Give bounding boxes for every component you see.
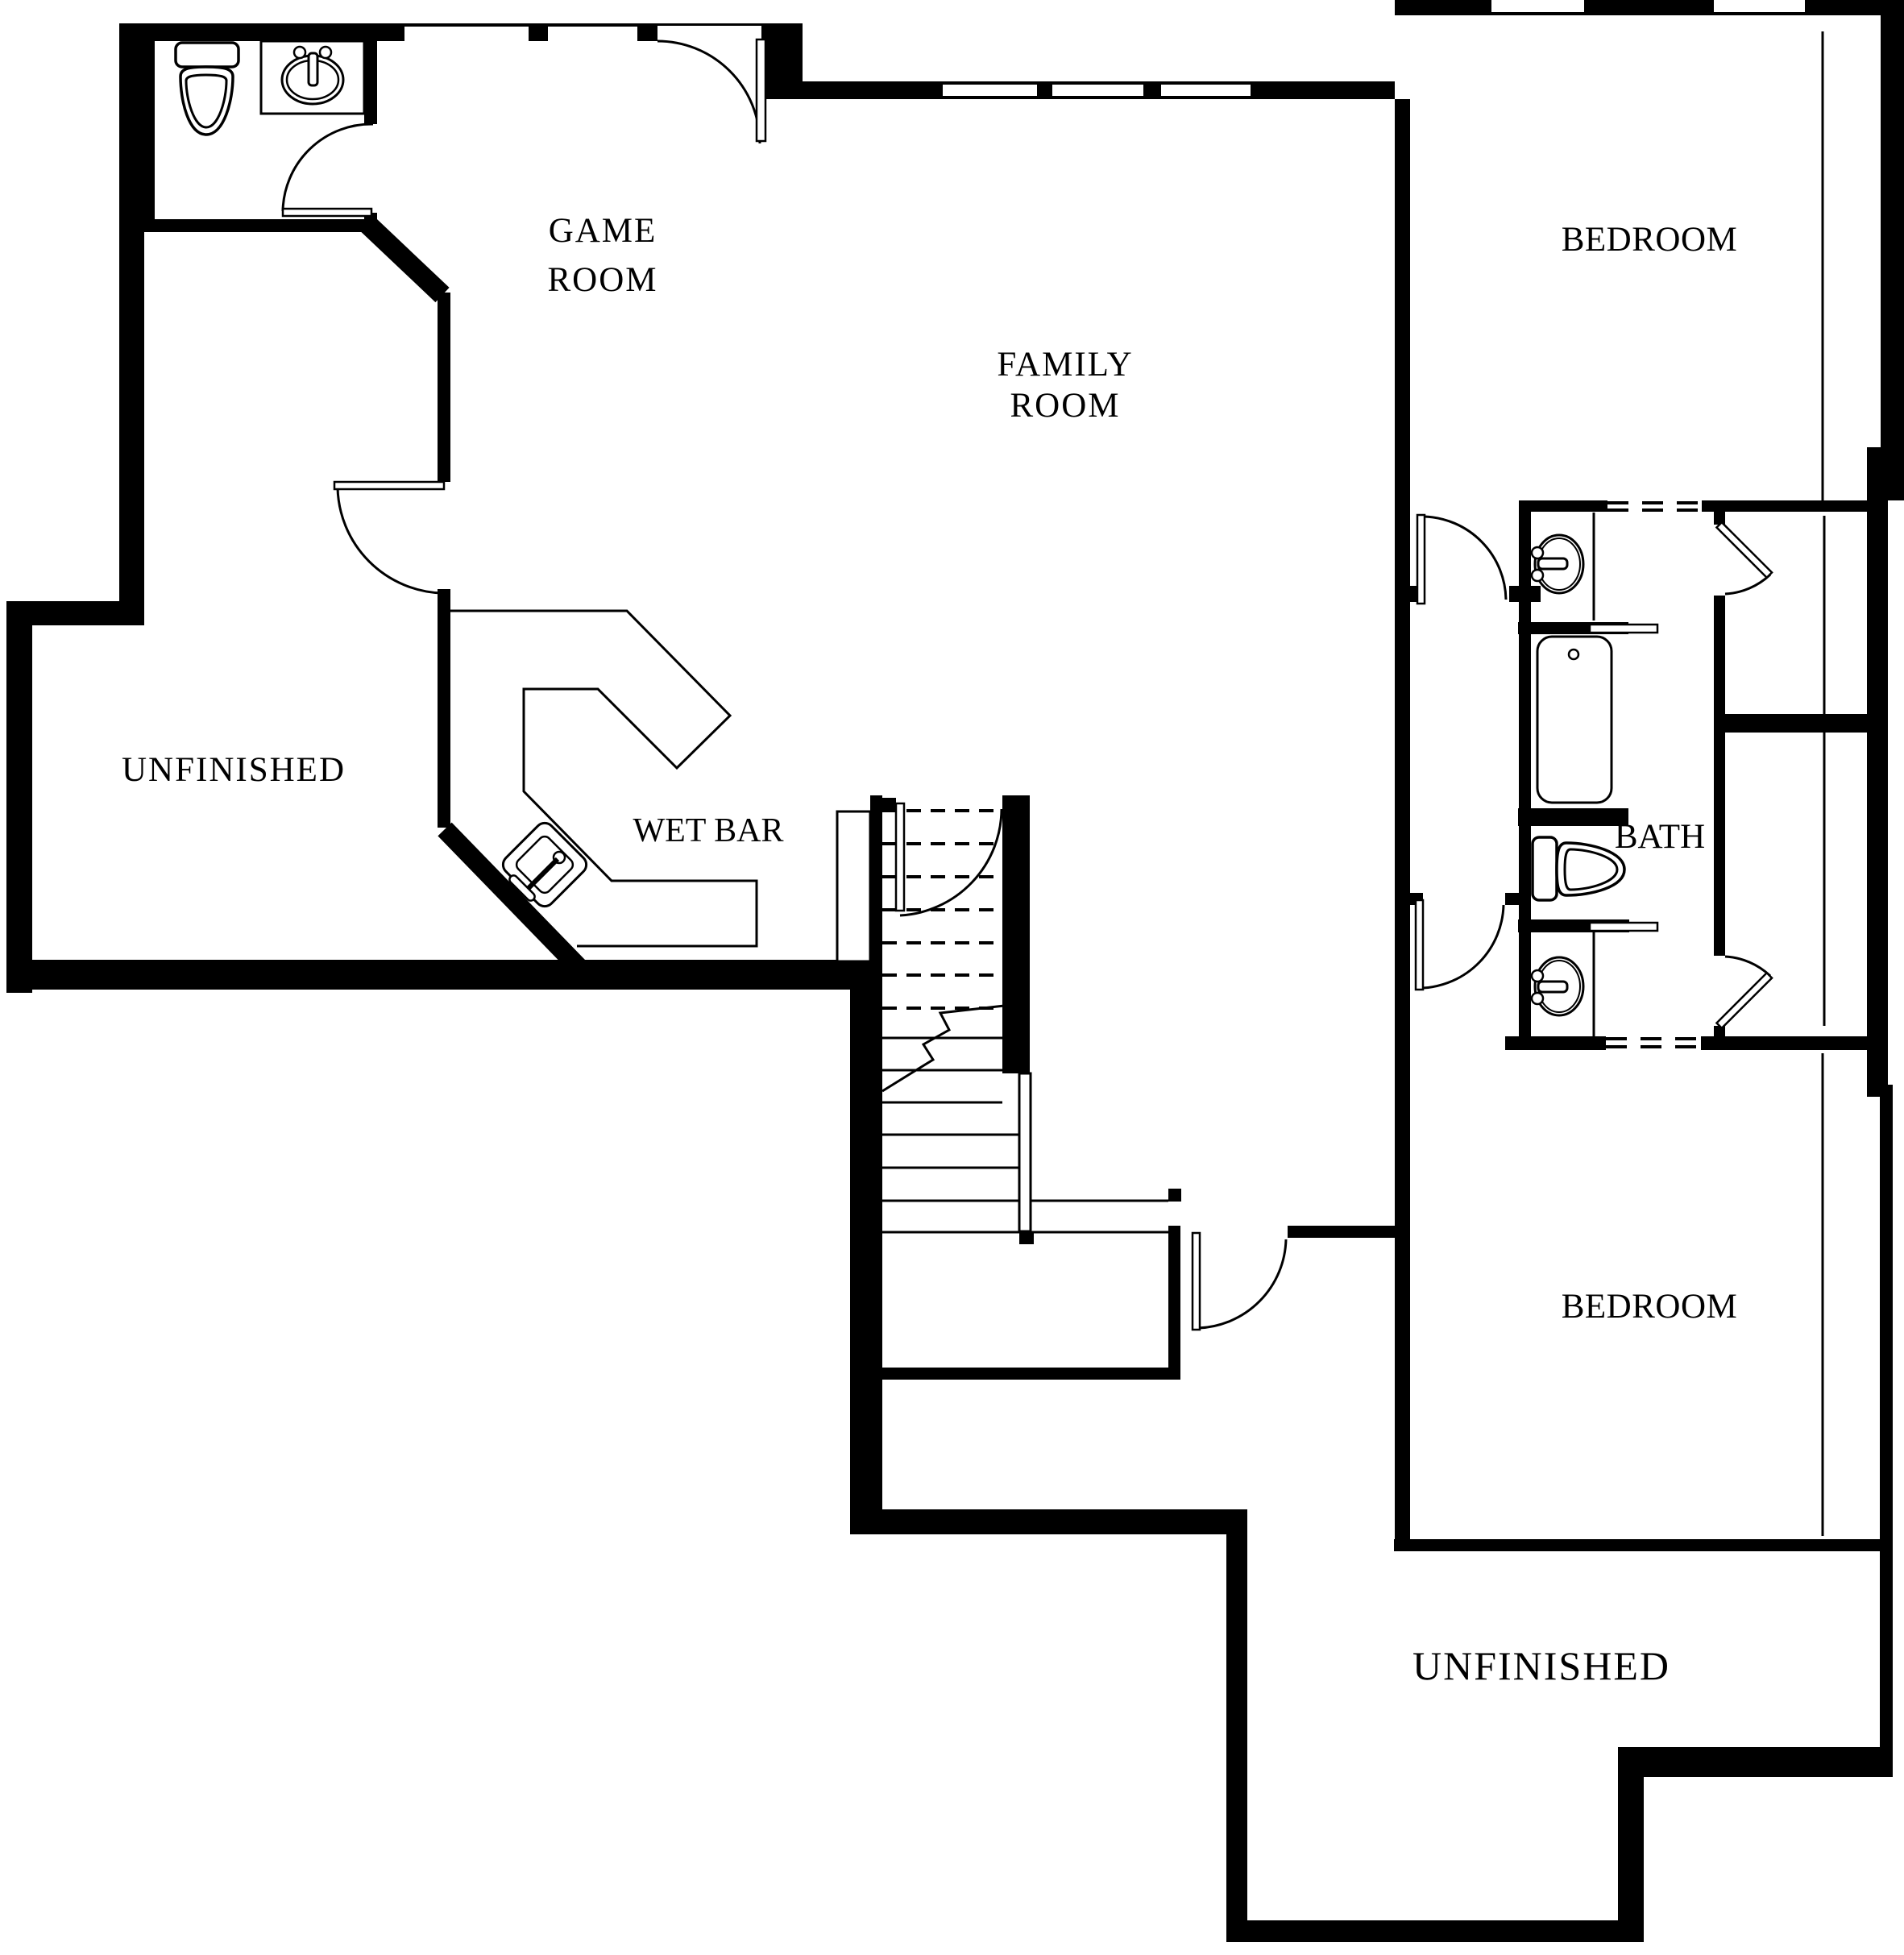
svg-text:BEDROOM: BEDROOM	[1562, 1288, 1738, 1326]
svg-text:UNFINISHED: UNFINISHED	[1412, 1643, 1670, 1688]
svg-text:UNFINISHED: UNFINISHED	[122, 751, 346, 789]
svg-text:GAME: GAME	[549, 212, 657, 250]
svg-text:FAMILY: FAMILY	[997, 346, 1133, 384]
svg-text:ROOM: ROOM	[1010, 387, 1120, 425]
svg-text:WET BAR: WET BAR	[633, 812, 783, 849]
svg-text:BATH: BATH	[1615, 818, 1705, 856]
svg-text:BEDROOM: BEDROOM	[1562, 221, 1738, 259]
svg-text:ROOM: ROOM	[547, 261, 657, 299]
